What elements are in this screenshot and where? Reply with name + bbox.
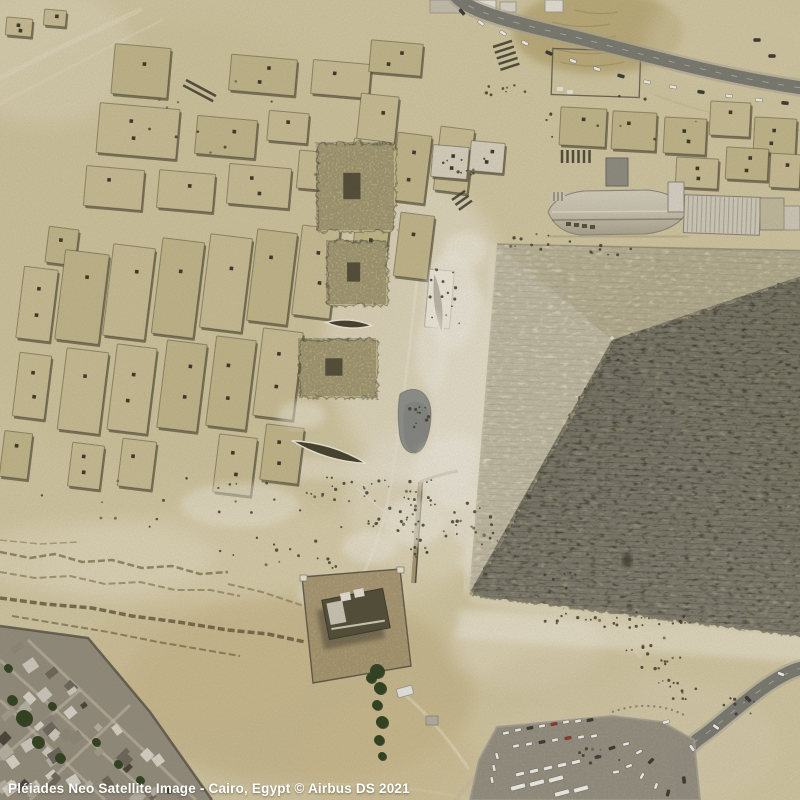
- giza-plateau-scene: [0, 0, 800, 800]
- caption: Pléiades Neo Satellite Image - Cairo, Eg…: [8, 781, 410, 796]
- satellite-image: Pléiades Neo Satellite Image - Cairo, Eg…: [0, 0, 800, 800]
- photo-grain: [0, 0, 800, 800]
